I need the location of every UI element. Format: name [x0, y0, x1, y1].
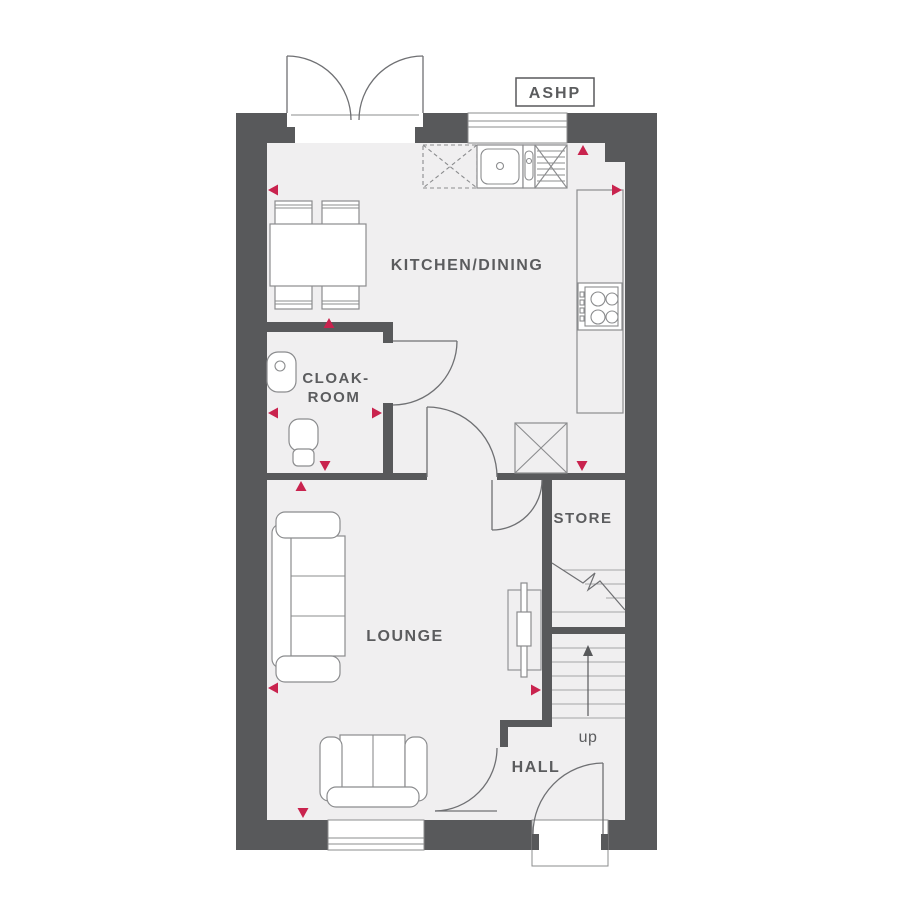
sofa-armrest: [276, 512, 340, 538]
stair-divider-wall: [552, 627, 625, 634]
sofa-back: [272, 524, 291, 668]
cloakroom-corner-wall: [383, 322, 393, 343]
ashp-unit: ASHP: [516, 78, 594, 106]
door-jamb: [601, 834, 608, 850]
dining-chair: [322, 285, 359, 309]
door-jamb: [532, 834, 539, 850]
sofa-armrest: [276, 656, 340, 682]
stair-left-wall: [542, 479, 552, 722]
door-jamb: [287, 127, 295, 143]
wall-right: [625, 113, 657, 850]
toilet-bowl: [289, 419, 318, 451]
front-door-threshold: [532, 820, 608, 866]
kitchen-dining-label: KITCHEN/DINING: [391, 257, 544, 274]
dining-chair: [275, 285, 312, 309]
cloakroom-right-wall: [383, 403, 393, 473]
stairs-up-label: up: [579, 729, 598, 746]
store-top-wall: [497, 473, 625, 480]
cloakroom-bottom-wall: [267, 473, 427, 480]
hall-stub-wall: [500, 720, 508, 747]
floorplan-page: ASHP KITCHEN/DINING CLOAK- ROOM STORE LO…: [0, 0, 900, 900]
wall-left: [236, 113, 267, 850]
door-jamb: [415, 127, 423, 143]
lounge-window: [328, 820, 424, 850]
cloakroom-label-line2: ROOM: [308, 389, 361, 406]
kitchen-window: [468, 113, 567, 143]
dining-table: [270, 224, 366, 286]
wall-segment: [608, 820, 657, 850]
tv-stand: [517, 612, 531, 646]
cloakroom-label-line1: CLOAK-: [302, 370, 369, 387]
wall-segment: [567, 113, 625, 143]
sink-unit: [477, 145, 523, 188]
sofa-3-seat: [289, 536, 345, 656]
basin: [267, 352, 296, 392]
floorplan-drawing: ASHP KITCHEN/DINING CLOAK- ROOM STORE LO…: [0, 0, 900, 900]
wall-segment: [236, 820, 328, 850]
ashp-label: ASHP: [529, 85, 581, 102]
toilet-base: [293, 449, 314, 466]
wall-segment: [423, 113, 468, 143]
wall-segment: [424, 820, 532, 850]
sofa-back: [327, 787, 419, 807]
hall-label: HALL: [512, 759, 561, 776]
lounge-label: LOUNGE: [366, 628, 443, 645]
store-label: STORE: [554, 510, 613, 527]
wall-step: [605, 143, 625, 162]
